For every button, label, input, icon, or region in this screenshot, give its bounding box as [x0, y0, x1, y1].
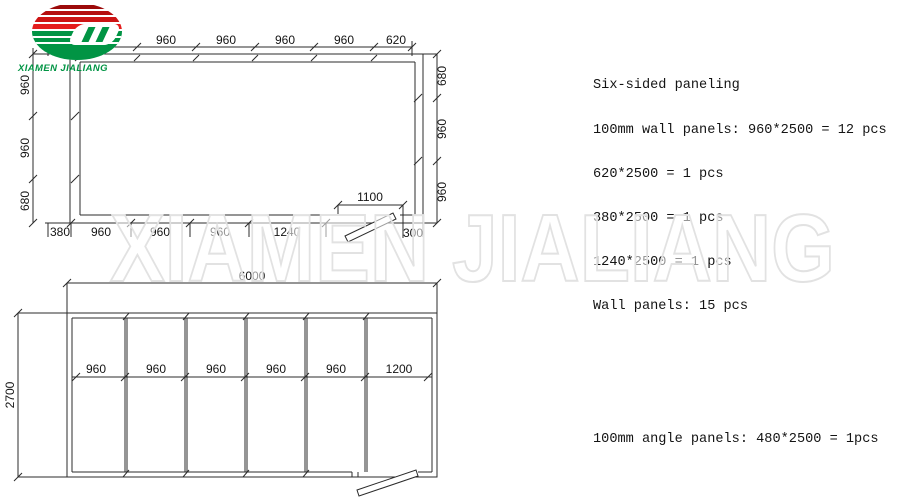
spec-line: 100mm wall panels: 960*2500 = 12 pcs: [593, 124, 903, 139]
dim-label: 620: [386, 33, 406, 47]
logo-glyph-bar: [82, 27, 96, 42]
spec-line: [593, 389, 903, 404]
logo-red-stripe: [32, 11, 122, 15]
logo-red-stripe: [32, 5, 122, 9]
dim-label: 960: [435, 182, 449, 202]
dimension-lines: [18, 283, 437, 477]
spec-line: 380*2500 = 1 pcs: [593, 212, 903, 227]
drawing-canvas: 480 960 960 960 960 960 620 960 960 680 …: [0, 0, 920, 501]
dim-label: 300: [403, 226, 423, 240]
xiamen-jialiang-logo: XIAMEN JIALIANG: [18, 3, 134, 74]
door-width-label: 1100: [357, 190, 383, 204]
dim-label: 1240: [274, 225, 301, 239]
dim-label: 960: [216, 33, 236, 47]
dim-label: 960: [275, 33, 295, 47]
dim-label: 960: [334, 33, 354, 47]
overall-width-label: 6000: [239, 269, 266, 283]
spec-line: 620*2500 = 1 pcs: [593, 168, 903, 183]
dim-label: 960: [266, 362, 286, 376]
dim-label: 680: [18, 191, 32, 211]
dim-label: 960: [18, 75, 32, 95]
overall-depth-label: 2700: [3, 381, 17, 408]
dim-label: 380: [50, 225, 70, 239]
logo-oval-mark: [32, 3, 122, 60]
dim-label: 960: [156, 33, 176, 47]
dim-label: 960: [91, 225, 111, 239]
logo-red-stripe: [32, 17, 122, 22]
dim-label: 960: [146, 362, 166, 376]
spec-line: [593, 477, 903, 492]
dim-label: 960: [18, 138, 32, 158]
dim-label: 960: [206, 362, 226, 376]
logo-glyph-bar: [96, 27, 110, 42]
dim-label: 1200: [386, 362, 413, 376]
dim-label: 960: [210, 225, 230, 239]
dim-label: 960: [86, 362, 106, 376]
spec-text-block: Six-sided paneling 100mm wall panels: 96…: [593, 50, 903, 501]
floor-plan-diagram: 6000 2700 960 960 960 960 960 1200: [3, 269, 441, 496]
spec-line: [593, 344, 903, 359]
door-leaf: [357, 470, 418, 496]
spec-line: Wall panels: 15 pcs: [593, 300, 903, 315]
spec-line: 1240*2500 = 1 pcs: [593, 256, 903, 271]
dimension-ticks: [14, 279, 441, 481]
logo-brand-text: XIAMEN JIALIANG: [18, 63, 134, 74]
dim-label: 960: [326, 362, 346, 376]
dim-label: 960: [435, 119, 449, 139]
spec-line: 100mm angle panels: 480*2500 = 1pcs: [593, 433, 903, 448]
logo-green-field: [32, 31, 122, 60]
wall-lines: [67, 313, 437, 477]
dim-label: 680: [435, 66, 449, 86]
dim-label: 960: [150, 225, 170, 239]
spec-line: Six-sided paneling: [593, 79, 903, 94]
door-leaf: [345, 213, 396, 242]
